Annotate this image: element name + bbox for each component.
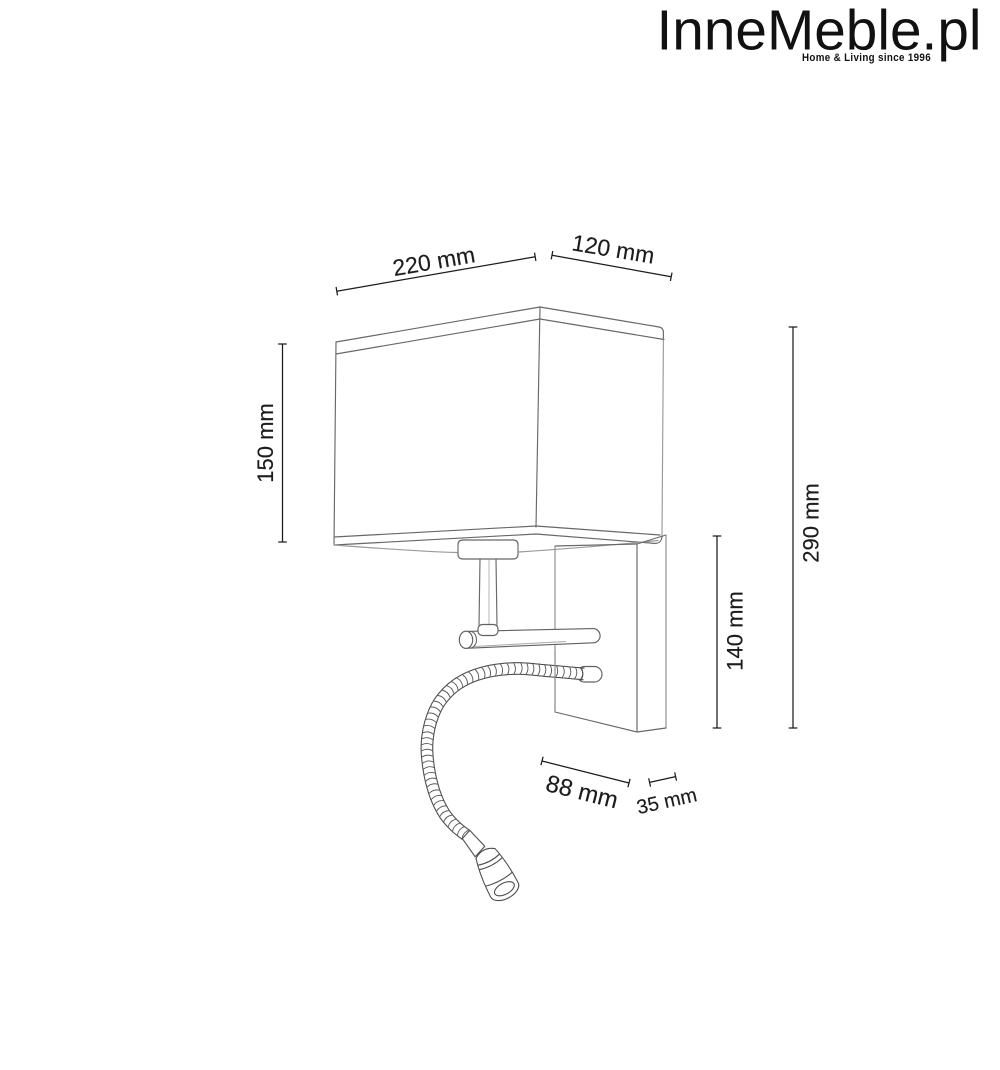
svg-text:290 mm: 290 mm: [799, 483, 824, 562]
svg-text:140 mm: 140 mm: [723, 591, 748, 670]
svg-text:150 mm: 150 mm: [253, 403, 278, 482]
svg-text:Home & Living since 1996: Home & Living since 1996: [802, 52, 931, 64]
